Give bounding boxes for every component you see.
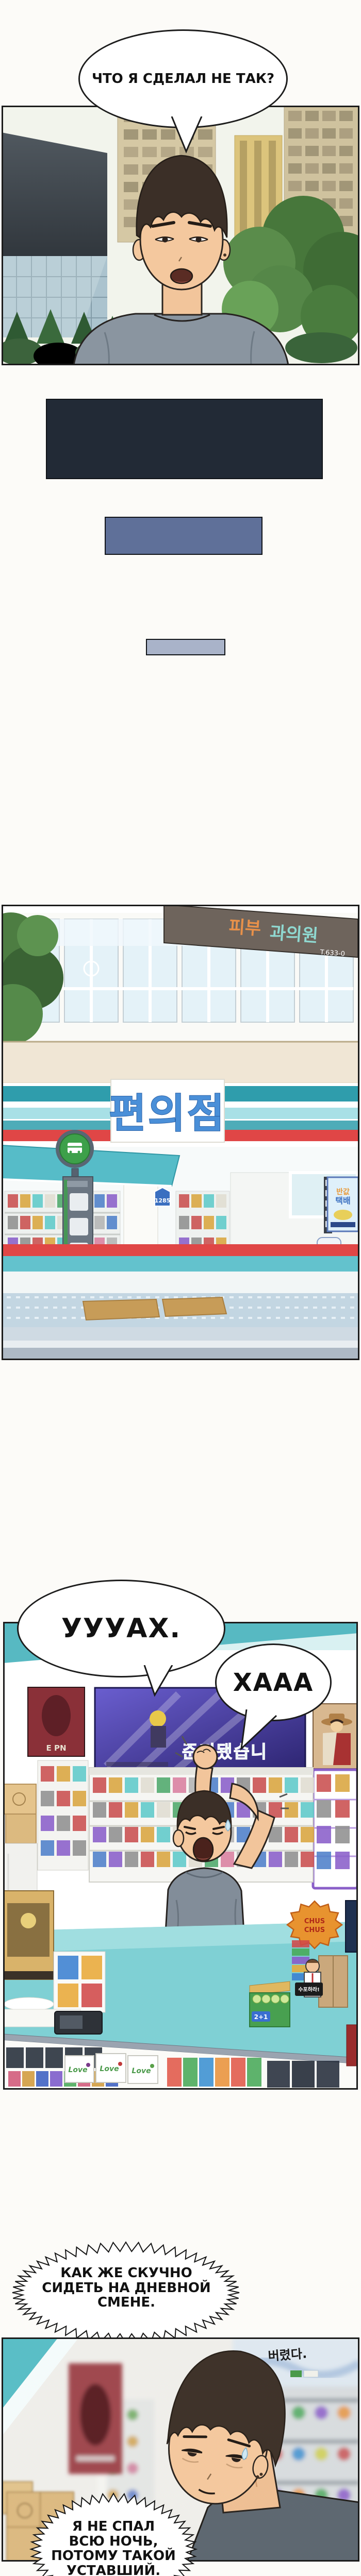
love-candy-boxes: Love Love Love bbox=[65, 2054, 158, 2083]
doormat-1 bbox=[83, 1299, 159, 1320]
store-sign-band: 편의점 bbox=[2, 1079, 359, 1147]
speech-bubble-yawn-1-tail bbox=[139, 1665, 180, 1697]
store-sign-text: 편의점 bbox=[109, 1091, 226, 1137]
transition-bar-small bbox=[146, 639, 225, 655]
thought-text-no-sleep: Я НЕ СПАЛ ВСЮ НОЧЬ, ПОТОМУ ТАКОЙ УСТАВШИ… bbox=[41, 2519, 186, 2576]
svg-text:CHUS: CHUS bbox=[304, 1926, 325, 1934]
svg-text:반값: 반값 bbox=[336, 1188, 350, 1196]
poster-left: E PN bbox=[28, 1687, 85, 1756]
comic-page: ЧТО Я СДЕЛАЛ НЕ ТАК? bbox=[0, 0, 361, 2576]
poster-right bbox=[313, 1704, 358, 1769]
left-shelf bbox=[38, 1760, 88, 1870]
clinic-sign-text-2: 과의원 bbox=[269, 922, 319, 946]
clinic-sign-text-1: 피부 bbox=[228, 917, 261, 939]
svg-text:1285: 1285 bbox=[155, 1197, 171, 1204]
speech-text: УУУАХ. bbox=[29, 1613, 214, 1644]
standee-speech-text: 수포하라! bbox=[298, 1986, 319, 1993]
address-plate: 1285 bbox=[155, 1188, 171, 1206]
road bbox=[2, 1348, 359, 1360]
transition-bar-dark bbox=[46, 399, 323, 479]
promo-box-2plus1: 2+1 bbox=[250, 1981, 290, 2027]
speech-bubble-what-did-i-do: ЧТО Я СДЕЛАЛ НЕ ТАК? bbox=[78, 29, 288, 128]
speech-bubble-yawn-2-tail bbox=[232, 1709, 278, 1753]
monitor bbox=[346, 1901, 358, 1952]
poster-left-text: E PN bbox=[46, 1743, 66, 1753]
speech-text: ЧТО Я СДЕЛАЛ НЕ ТАК? bbox=[90, 71, 276, 87]
red-boxes bbox=[347, 2025, 358, 2066]
promo-label-text: 2+1 bbox=[254, 2013, 268, 2021]
transition-bar-medium bbox=[105, 517, 262, 555]
beam bbox=[2, 1042, 359, 1083]
delivery-poster: 반값 택배 bbox=[327, 1177, 358, 1231]
svg-text:Love: Love bbox=[132, 2067, 151, 2075]
purple-cigarette-shelf bbox=[313, 1770, 357, 1888]
blurred-poster-red bbox=[69, 2363, 122, 2474]
panel-store-exterior: 피부 과의원 T.633-0 bbox=[2, 905, 359, 1360]
speech-bubble-yawn-1: УУУАХ. bbox=[17, 1580, 225, 1677]
store-exterior-illustration: 피부 과의원 T.633-0 bbox=[2, 905, 359, 1360]
svg-text:Love: Love bbox=[68, 2066, 87, 2074]
svg-text:CHUS: CHUS bbox=[304, 1918, 325, 1925]
speech-text: ХААА bbox=[222, 1668, 324, 1697]
doormat-2 bbox=[162, 1297, 226, 1316]
red-base-band bbox=[2, 1244, 359, 1256]
speech-bubble-tail bbox=[168, 116, 209, 155]
shelf-banner-text: 버렸다. bbox=[268, 2346, 307, 2363]
storefront: 반값 택배 bbox=[2, 1130, 359, 1360]
svg-text:택배: 택배 bbox=[335, 1196, 350, 1206]
thought-text-bored: КАК ЖЕ СКУЧНО СИДЕТЬ НА ДНЕВНОЙ СМЕНЕ. bbox=[36, 2266, 217, 2310]
svg-text:Love: Love bbox=[100, 2065, 119, 2073]
